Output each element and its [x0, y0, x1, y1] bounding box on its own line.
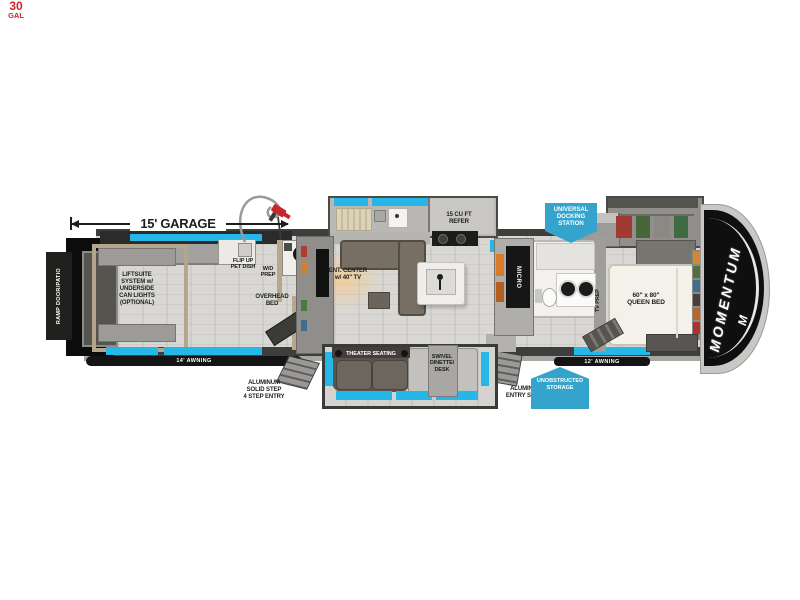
shelf-item	[301, 300, 307, 311]
shelf-item	[301, 246, 307, 257]
microwave-label: MICRO	[515, 266, 521, 289]
bedroom-cabinet	[636, 240, 696, 266]
closet-wall	[608, 198, 698, 208]
hanging-clothes	[654, 216, 670, 238]
counter-item	[374, 210, 386, 222]
dimension-arrow-left	[71, 220, 79, 228]
kitchen-faucet-icon	[395, 214, 399, 218]
island-sink	[426, 269, 456, 295]
garage-bottom-window-2	[164, 347, 262, 355]
microwave: MICRO	[506, 246, 530, 308]
overhead-bed-label: OVERHEAD BED	[244, 294, 300, 308]
theater-cushion	[336, 360, 372, 390]
toilet-tank	[535, 289, 542, 303]
vanity-sink-icon	[559, 280, 577, 298]
awning-12-bar: 12' AWNING	[554, 357, 650, 366]
burner-icon	[456, 234, 466, 244]
kitchen-window-2	[372, 198, 428, 206]
curtain-window	[336, 208, 372, 231]
refrigerator-label: 15 CU FT REFER	[430, 212, 488, 226]
bedroom-window	[574, 347, 650, 355]
awning-14-label: 14' AWNING	[176, 358, 211, 364]
fuel-pump-icon	[233, 188, 303, 244]
theater-cushion	[372, 360, 408, 390]
garage-bottom-window-1	[106, 347, 158, 355]
shower	[536, 243, 595, 270]
garage-dimension-label: 15' GARAGE	[130, 216, 226, 231]
rv-floorplan: 14' AWNING 12' AWNING RAMP DOOR/PATIO LI…	[0, 0, 800, 600]
ent-center-label: ENT. CENTER w/ 40" TV	[324, 268, 372, 282]
oven-accent	[496, 282, 504, 302]
unobstructed-storage-badge: UNOBSTRUCTED STORAGE	[531, 367, 589, 409]
kitchen-window-1	[334, 198, 368, 206]
fuel-capacity-label: 30 GAL	[0, 0, 32, 20]
slide-window-bottom-2	[396, 391, 432, 400]
toilet-icon	[542, 288, 557, 307]
ramp-door-patio: RAMP DOOR/PATIO	[46, 252, 72, 340]
slide-window-right	[481, 352, 489, 386]
queen-bed-label: 60" x 80" QUEEN BED	[614, 292, 678, 307]
slide-window-bottom-1	[336, 391, 392, 400]
awning-14-bar: 14' AWNING	[86, 356, 302, 366]
dinette-label: SWIVEL DINETTE/ DESK	[424, 354, 460, 373]
theater-seating-label: THEATER SEATING	[330, 351, 412, 357]
solid-step-label: ALUMINUM SOLID STEP 4 STEP ENTRY	[234, 380, 294, 401]
fuel-unit: GAL	[0, 12, 32, 20]
hanging-clothes	[616, 216, 632, 238]
awning-12-label: 12' AWNING	[584, 359, 619, 365]
garage-sink	[238, 243, 252, 257]
liftsuite-sofa-top	[98, 248, 176, 266]
vanity-sink-icon	[577, 280, 595, 298]
bed-bench	[646, 334, 698, 352]
hanging-clothes	[674, 216, 688, 238]
liftsuite-sofa-bottom	[98, 324, 176, 342]
dryer-icon	[284, 243, 292, 251]
wd-prep-label: W/D PREP	[248, 266, 288, 279]
shelf-item	[301, 320, 307, 331]
oven-accent	[496, 254, 504, 276]
kitchen-sink	[388, 208, 408, 228]
burner-icon	[438, 234, 448, 244]
hanging-clothes	[636, 216, 650, 238]
dimension-arrow-right	[281, 220, 289, 228]
liftsuite-label: LIFTSUITE SYSTEM w/ UNDERSIDE CAN LIGHTS…	[106, 272, 168, 306]
island-faucet-stem	[439, 280, 441, 290]
ottoman	[368, 292, 390, 309]
shelf-item	[301, 262, 307, 273]
ramp-door-patio-label: RAMP DOOR/PATIO	[56, 268, 62, 324]
tv-prep-label: TV PREP	[595, 282, 601, 320]
